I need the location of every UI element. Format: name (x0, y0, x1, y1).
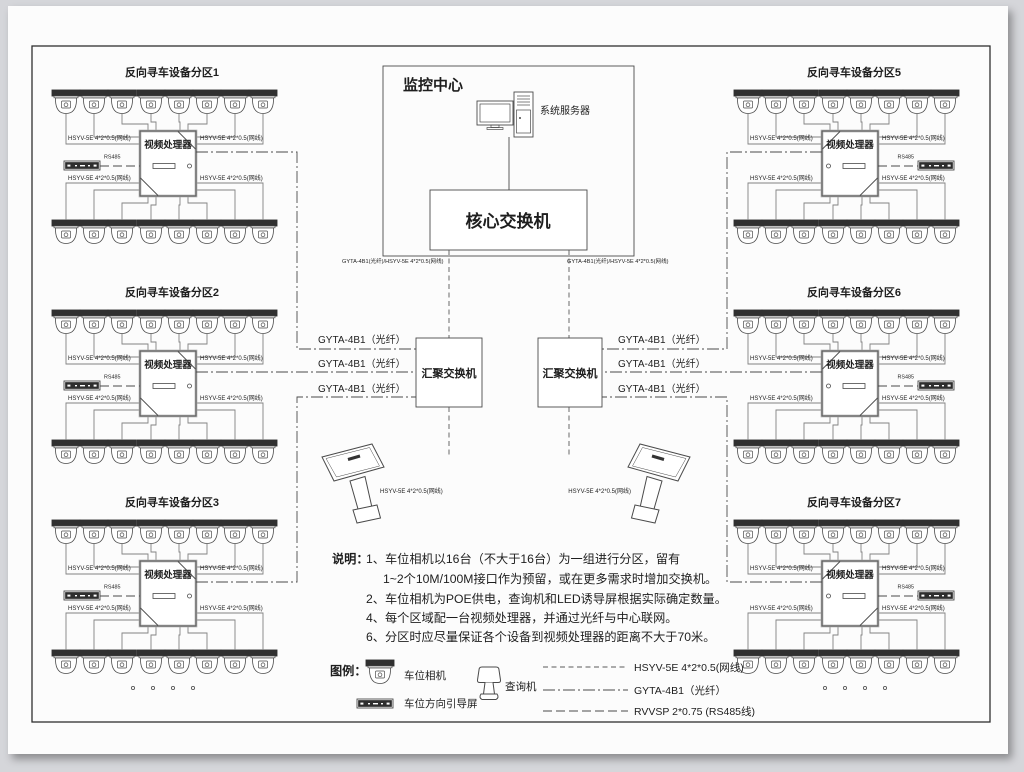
net-cable-label: HSYV-5E 4*2*0.5(网线) (750, 604, 813, 612)
zone-title: 反向寻车设备分区1 (125, 65, 219, 79)
dome-camera-icon (249, 650, 277, 674)
server-label: 系统服务器 (540, 104, 590, 117)
camera-wire (776, 334, 822, 357)
dome-camera-icon (221, 90, 249, 114)
dome-camera-icon (762, 90, 790, 114)
camera-wire (94, 410, 140, 440)
video-processor-label: 视频处理器 (144, 569, 192, 581)
dome-camera-icon (762, 310, 790, 334)
net-cable-label: HSYV-5E 4*2*0.5(网线) (68, 134, 131, 142)
net-cable-label: HSYV-5E 4*2*0.5(网线) (750, 354, 813, 362)
camera-wire (870, 416, 889, 440)
dome-camera-icon (221, 520, 249, 544)
dome-camera-icon (734, 520, 762, 544)
dome-camera-icon (790, 650, 818, 674)
camera-wire (776, 544, 822, 567)
camera-wire (122, 114, 148, 131)
camera-wire (878, 114, 917, 137)
camera-wire (94, 190, 140, 220)
dome-camera-icon (762, 650, 790, 674)
dome-camera-icon (819, 220, 847, 244)
fiber-label: GYTA-4B1（光纤） (318, 382, 406, 395)
camera-wire (151, 626, 156, 650)
camera-wire (748, 183, 822, 220)
dome-camera-icon (931, 220, 959, 244)
dome-camera-icon (80, 310, 108, 334)
camera-wire (188, 196, 207, 220)
dome-camera-icon (819, 520, 847, 544)
zone-6: 反向寻车设备分区6视频处理器HSYV-5E 4*2*0.5(网线)HSYV-5E… (734, 285, 959, 464)
camera-wire (878, 183, 945, 220)
zone-title: 反向寻车设备分区7 (807, 495, 901, 509)
camera-wire (804, 544, 830, 561)
dome-camera-icon (137, 220, 165, 244)
zone-title: 反向寻车设备分区6 (807, 285, 901, 299)
camera-wire (151, 334, 156, 351)
dome-camera-icon (875, 220, 903, 244)
camera-wire (188, 544, 207, 561)
camera-wire (196, 410, 235, 440)
monitoring-center-title: 监控中心 (403, 76, 463, 94)
dome-camera-icon (790, 520, 818, 544)
zone-5: 反向寻车设备分区5视频处理器HSYV-5E 4*2*0.5(网线)HSYV-5E… (734, 65, 959, 244)
dome-camera-icon (80, 90, 108, 114)
dome-camera-icon (875, 440, 903, 464)
dome-camera-icon (52, 220, 80, 244)
dome-camera-icon (165, 90, 193, 114)
dome-camera-icon (847, 440, 875, 464)
aggregation-switch-label: 汇聚交换机 (422, 366, 477, 380)
camera-wire (861, 196, 862, 220)
video-processor-label: 视频处理器 (826, 569, 874, 581)
camera-wire (122, 196, 148, 220)
dome-camera-icon (108, 650, 136, 674)
dome-camera-icon (903, 90, 931, 114)
dome-camera-icon (108, 220, 136, 244)
camera-wire (776, 620, 822, 650)
dome-camera-icon (875, 650, 903, 674)
camera-wire (196, 620, 235, 650)
dome-camera-icon (931, 440, 959, 464)
camera-wire (776, 410, 822, 440)
dome-camera-icon (165, 650, 193, 674)
legend-guide-screen-label: 车位方向引导屏 (404, 697, 478, 710)
zone-title: 反向寻车设备分区2 (125, 285, 219, 299)
kiosk-cable-label: HSYV-5E 4*2*0.5(网线) (568, 487, 631, 495)
dome-camera-icon (903, 310, 931, 334)
dome-camera-icon (108, 310, 136, 334)
zone-7: 反向寻车设备分区7视频处理器HSYV-5E 4*2*0.5(网线)HSYV-5E… (734, 495, 959, 674)
camera-wire (861, 544, 862, 561)
zone-2: 反向寻车设备分区2视频处理器HSYV-5E 4*2*0.5(网线)HSYV-5E… (52, 285, 277, 464)
notes-heading: 说明： (332, 551, 369, 566)
dome-camera-icon (762, 520, 790, 544)
continuation-dot (883, 686, 886, 689)
camera-wire (776, 114, 822, 137)
dome-camera-icon (875, 90, 903, 114)
guide-screen-icon (918, 591, 954, 600)
net-cable-label: HSYV-5E 4*2*0.5(网线) (750, 394, 813, 402)
camera-wire (878, 620, 917, 650)
camera-wire (776, 190, 822, 220)
continuation-dot (171, 686, 174, 689)
net-cable-label: HSYV-5E 4*2*0.5(网线) (200, 354, 263, 362)
query-kiosk-icon (628, 444, 690, 523)
camera-wire (151, 114, 156, 131)
camera-wire (870, 334, 889, 351)
dome-camera-icon (249, 440, 277, 464)
dome-camera-icon (931, 650, 959, 674)
net-cable-label: HSYV-5E 4*2*0.5(网线) (68, 174, 131, 182)
dome-camera-icon (790, 220, 818, 244)
camera-wire (179, 114, 180, 131)
fiber-label: GYTA-4B1（光纤） (318, 357, 406, 370)
dome-camera-icon (221, 650, 249, 674)
dome-camera-icon (903, 220, 931, 244)
camera-wire (861, 416, 862, 440)
zone-1: 反向寻车设备分区1视频处理器HSYV-5E 4*2*0.5(网线)HSYV-5E… (52, 65, 277, 244)
dome-camera-icon (847, 90, 875, 114)
camera-wire (861, 334, 862, 351)
camera-wire (94, 544, 140, 567)
camera-wire (94, 620, 140, 650)
camera-wire (748, 613, 822, 650)
continuation-dot (131, 686, 134, 689)
net-cable-label: HSYV-5E 4*2*0.5(网线) (200, 564, 263, 572)
note-line: 1、车位相机以16台（不大于16台）为一组进行分区，留有 (366, 551, 680, 566)
camera-wire (878, 544, 917, 567)
dome-camera-icon (819, 650, 847, 674)
camera-wire (804, 114, 830, 131)
net-cable-label: HSYV-5E 4*2*0.5(网线) (200, 174, 263, 182)
camera-wire (861, 114, 862, 131)
camera-wire (878, 190, 917, 220)
dome-camera-icon (193, 440, 221, 464)
dome-camera-icon (790, 90, 818, 114)
guide-screen-icon (918, 161, 954, 170)
dome-camera-icon (819, 440, 847, 464)
dome-camera-icon (819, 310, 847, 334)
camera-wire (188, 626, 207, 650)
dome-camera-icon (165, 440, 193, 464)
dome-camera-icon (762, 220, 790, 244)
dome-camera-icon (137, 520, 165, 544)
dome-camera-icon (790, 310, 818, 334)
core-uplink-label: GYTA-4B1(光纤)/HSYV-5E 4*2*0.5(网线) (342, 257, 444, 265)
camera-wire (94, 334, 140, 357)
dome-camera-icon (819, 90, 847, 114)
camera-wire (804, 334, 830, 351)
dome-camera-icon (52, 90, 80, 114)
query-kiosk-icon (322, 444, 384, 523)
net-cable-label: HSYV-5E 4*2*0.5(网线) (200, 134, 263, 142)
camera-wire (66, 403, 140, 440)
dome-camera-icon (80, 520, 108, 544)
dome-camera-icon (80, 650, 108, 674)
camera-wire (196, 334, 235, 357)
camera-wire (122, 416, 148, 440)
camera-wire (861, 626, 862, 650)
camera-wire (196, 544, 235, 567)
net-cable-label: HSYV-5E 4*2*0.5(网线) (68, 354, 131, 362)
dome-camera-icon (734, 440, 762, 464)
net-cable-label: HSYV-5E 4*2*0.5(网线) (750, 134, 813, 142)
camera-wire (833, 416, 838, 440)
camera-wire (833, 114, 838, 131)
dome-camera-icon (875, 310, 903, 334)
continuation-dot (191, 686, 194, 689)
dome-camera-icon (790, 440, 818, 464)
dome-camera-icon (52, 650, 80, 674)
legend-camera-icon (366, 660, 394, 684)
camera-wire (833, 334, 838, 351)
camera-wire (179, 544, 180, 561)
dome-camera-icon (80, 220, 108, 244)
net-cable-label: HSYV-5E 4*2*0.5(网线) (68, 394, 131, 402)
camera-wire (188, 416, 207, 440)
core-switch-label: 核心交换机 (466, 211, 551, 231)
dome-camera-icon (137, 440, 165, 464)
dome-camera-icon (137, 310, 165, 334)
net-cable-label: HSYV-5E 4*2*0.5(网线) (750, 564, 813, 572)
rs485-label: RS485 (104, 585, 120, 591)
rs485-label: RS485 (104, 155, 120, 161)
camera-wire (833, 544, 838, 561)
kiosk-cable-label: HSYV-5E 4*2*0.5(网线) (380, 487, 443, 495)
note-line: 1~2个10M/100M接口作为预留，或在更多需求时增加交换机。 (383, 571, 717, 586)
core-uplink-label: GYTA-4B1(光纤)/HSYV-5E 4*2*0.5(网线) (567, 257, 669, 265)
dome-camera-icon (165, 310, 193, 334)
camera-wire (122, 334, 148, 351)
camera-wire (833, 626, 838, 650)
camera-wire (878, 613, 945, 650)
camera-wire (196, 613, 263, 650)
camera-wire (66, 613, 140, 650)
dome-camera-icon (249, 520, 277, 544)
dome-camera-icon (52, 310, 80, 334)
fiber-label: GYTA-4B1（光纤） (618, 333, 706, 346)
guide-screen-icon (64, 591, 100, 600)
continuation-dot (843, 686, 846, 689)
dome-camera-icon (52, 440, 80, 464)
video-processor-label: 视频处理器 (826, 139, 874, 151)
continuation-dot (823, 686, 826, 689)
net-cable-label: HSYV-5E 4*2*0.5(网线) (68, 604, 131, 612)
dome-camera-icon (108, 440, 136, 464)
note-line: 2、车位相机为POE供电，查询机和LED诱导屏根据实际确定数量。 (366, 591, 727, 606)
guide-screen-icon (918, 381, 954, 390)
net-cable-label: HSYV-5E 4*2*0.5(网线) (200, 604, 263, 612)
camera-wire (870, 626, 889, 650)
camera-wire (878, 403, 945, 440)
net-cable-label: HSYV-5E 4*2*0.5(网线) (200, 394, 263, 402)
rs485-label: RS485 (898, 155, 914, 161)
net-cable-label: HSYV-5E 4*2*0.5(网线) (68, 564, 131, 572)
camera-wire (878, 410, 917, 440)
camera-wire (833, 196, 838, 220)
legend-net-line-label: HSYV-5E 4*2*0.5(网线) (634, 661, 744, 674)
dome-camera-icon (193, 310, 221, 334)
video-processor-label: 视频处理器 (826, 359, 874, 371)
camera-wire (179, 416, 180, 440)
net-cable-label: HSYV-5E 4*2*0.5(网线) (882, 564, 945, 572)
dome-camera-icon (137, 90, 165, 114)
dome-camera-icon (249, 220, 277, 244)
camera-wire (870, 544, 889, 561)
dome-camera-icon (249, 310, 277, 334)
camera-wire (196, 114, 235, 137)
legend-rs485-line-label: RVVSP 2*0.75 (RS485线) (634, 705, 755, 718)
dome-camera-icon (734, 310, 762, 334)
net-cable-label: HSYV-5E 4*2*0.5(网线) (882, 354, 945, 362)
fiber-label: GYTA-4B1（光纤） (318, 333, 406, 346)
dome-camera-icon (931, 520, 959, 544)
rs485-label: RS485 (104, 375, 120, 381)
dome-camera-icon (847, 650, 875, 674)
dome-camera-icon (903, 440, 931, 464)
dome-camera-icon (221, 440, 249, 464)
legend-heading: 图例： (330, 663, 367, 678)
dome-camera-icon (165, 520, 193, 544)
camera-wire (66, 183, 140, 220)
fiber-label: GYTA-4B1（光纤） (618, 382, 706, 395)
camera-wire (196, 403, 263, 440)
net-cable-label: HSYV-5E 4*2*0.5(网线) (882, 134, 945, 142)
net-cable-label: HSYV-5E 4*2*0.5(网线) (882, 394, 945, 402)
camera-wire (196, 190, 235, 220)
guide-screen-icon (64, 161, 100, 170)
dome-camera-icon (734, 90, 762, 114)
dome-camera-icon (931, 310, 959, 334)
note-line: 6、分区时应尽量保证各个设备到视频处理器的距离不大于70米。 (366, 629, 715, 644)
dome-camera-icon (193, 220, 221, 244)
dome-camera-icon (875, 520, 903, 544)
camera-wire (804, 196, 830, 220)
legend-fiber-line-label: GYTA-4B1（光纤） (634, 684, 726, 697)
dome-camera-icon (137, 650, 165, 674)
continuation-dot (863, 686, 866, 689)
fiber-label: GYTA-4B1（光纤） (618, 357, 706, 370)
dome-camera-icon (903, 520, 931, 544)
camera-wire (870, 196, 889, 220)
aggregation-switch-label: 汇聚交换机 (543, 366, 598, 380)
camera-wire (122, 626, 148, 650)
camera-wire (196, 183, 263, 220)
dome-camera-icon (165, 220, 193, 244)
dome-camera-icon (193, 90, 221, 114)
camera-wire (188, 114, 207, 131)
dome-camera-icon (193, 650, 221, 674)
camera-wire (804, 626, 830, 650)
dome-camera-icon (108, 90, 136, 114)
camera-wire (748, 403, 822, 440)
dome-camera-icon (847, 520, 875, 544)
dome-camera-icon (221, 220, 249, 244)
camera-wire (122, 544, 148, 561)
dome-camera-icon (249, 90, 277, 114)
video-processor-label: 视频处理器 (144, 139, 192, 151)
continuation-dot (151, 686, 154, 689)
parking-guidance-network-diagram: 反向寻车设备分区1视频处理器HSYV-5E 4*2*0.5(网线)HSYV-5E… (0, 0, 1024, 772)
camera-wire (151, 544, 156, 561)
dome-camera-icon (734, 220, 762, 244)
system-server-icon (477, 92, 533, 137)
camera-wire (151, 196, 156, 220)
dome-camera-icon (80, 440, 108, 464)
legend-kiosk-label: 查询机 (505, 680, 537, 693)
dome-camera-icon (847, 220, 875, 244)
guide-screen-icon (64, 381, 100, 390)
zone-title: 反向寻车设备分区3 (125, 495, 219, 509)
camera-wire (878, 334, 917, 357)
net-cable-label: HSYV-5E 4*2*0.5(网线) (882, 604, 945, 612)
net-cable-label: HSYV-5E 4*2*0.5(网线) (882, 174, 945, 182)
dome-camera-icon (52, 520, 80, 544)
dome-camera-icon (221, 310, 249, 334)
camera-wire (179, 334, 180, 351)
note-line: 4、每个区域配一台视频处理器，并通过光纤与中心联网。 (366, 610, 677, 625)
camera-wire (188, 334, 207, 351)
camera-wire (151, 416, 156, 440)
dome-camera-icon (903, 650, 931, 674)
dome-camera-icon (762, 440, 790, 464)
zone-title: 反向寻车设备分区5 (807, 65, 901, 79)
net-cable-label: HSYV-5E 4*2*0.5(网线) (750, 174, 813, 182)
rs485-label: RS485 (898, 585, 914, 591)
dome-camera-icon (931, 90, 959, 114)
camera-wire (870, 114, 889, 131)
camera-wire (804, 416, 830, 440)
dome-camera-icon (193, 520, 221, 544)
rs485-label: RS485 (898, 375, 914, 381)
legend-kiosk-icon (477, 667, 500, 700)
camera-wire (179, 626, 180, 650)
legend-guide-screen-icon (357, 699, 393, 708)
dome-camera-icon (847, 310, 875, 334)
video-processor-label: 视频处理器 (144, 359, 192, 371)
legend-camera-label: 车位相机 (404, 669, 446, 682)
camera-wire (179, 196, 180, 220)
camera-wire (94, 114, 140, 137)
dome-camera-icon (108, 520, 136, 544)
zone-3: 反向寻车设备分区3视频处理器HSYV-5E 4*2*0.5(网线)HSYV-5E… (52, 495, 277, 674)
